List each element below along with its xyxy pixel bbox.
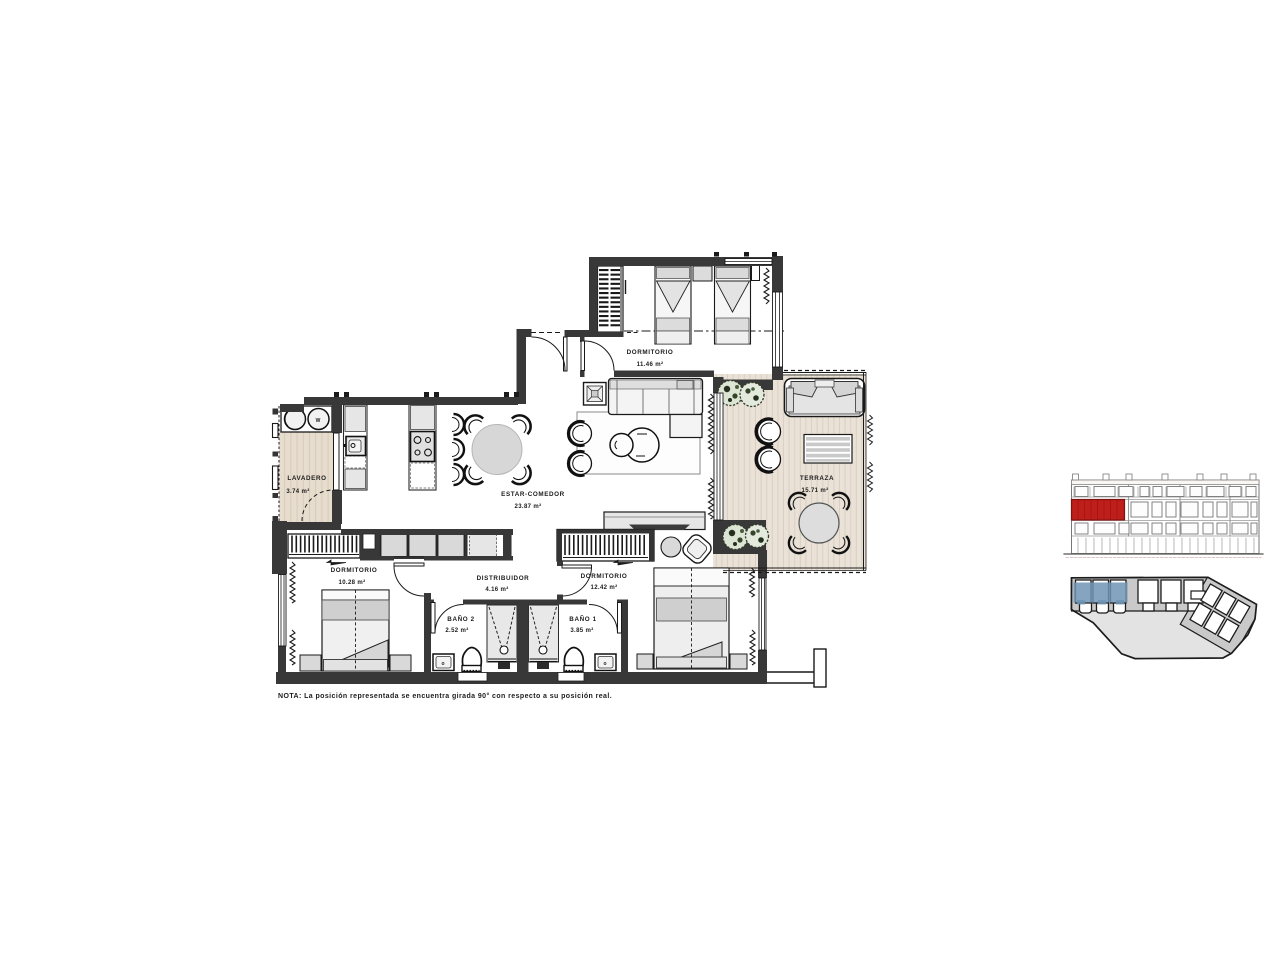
svg-text:LAVADERO: LAVADERO <box>287 475 326 482</box>
svg-text:DORMITORIO: DORMITORIO <box>581 573 628 580</box>
svg-text:2.52 m²: 2.52 m² <box>445 627 468 634</box>
svg-text:23.87 m²: 23.87 m² <box>514 503 541 510</box>
svg-text:BAÑO 1: BAÑO 1 <box>569 614 596 623</box>
svg-text:BAÑO 2: BAÑO 2 <box>447 614 474 623</box>
svg-text:ESTAR-COMEDOR: ESTAR-COMEDOR <box>501 491 565 498</box>
svg-text:DORMITORIO: DORMITORIO <box>627 349 674 356</box>
svg-text:3.85 m²: 3.85 m² <box>570 627 593 634</box>
svg-text:3.74 m²: 3.74 m² <box>286 488 309 495</box>
svg-text:12.42 m²: 12.42 m² <box>590 584 617 591</box>
svg-text:TERRAZA: TERRAZA <box>800 475 834 482</box>
svg-text:DISTRIBUIDOR: DISTRIBUIDOR <box>477 575 530 582</box>
svg-text:DORMITORIO: DORMITORIO <box>331 567 378 574</box>
svg-text:o: o <box>441 661 444 667</box>
svg-text:11.46 m²: 11.46 m² <box>637 361 664 368</box>
svg-text:W: W <box>316 418 321 424</box>
svg-text:15.71 m²: 15.71 m² <box>801 487 828 494</box>
svg-text:10.28 m²: 10.28 m² <box>338 579 365 586</box>
svg-text:4.16 m²: 4.16 m² <box>485 586 508 593</box>
svg-text:NOTA: La posición representada: NOTA: La posición representada se encuen… <box>278 692 612 700</box>
svg-text:o: o <box>603 661 606 667</box>
